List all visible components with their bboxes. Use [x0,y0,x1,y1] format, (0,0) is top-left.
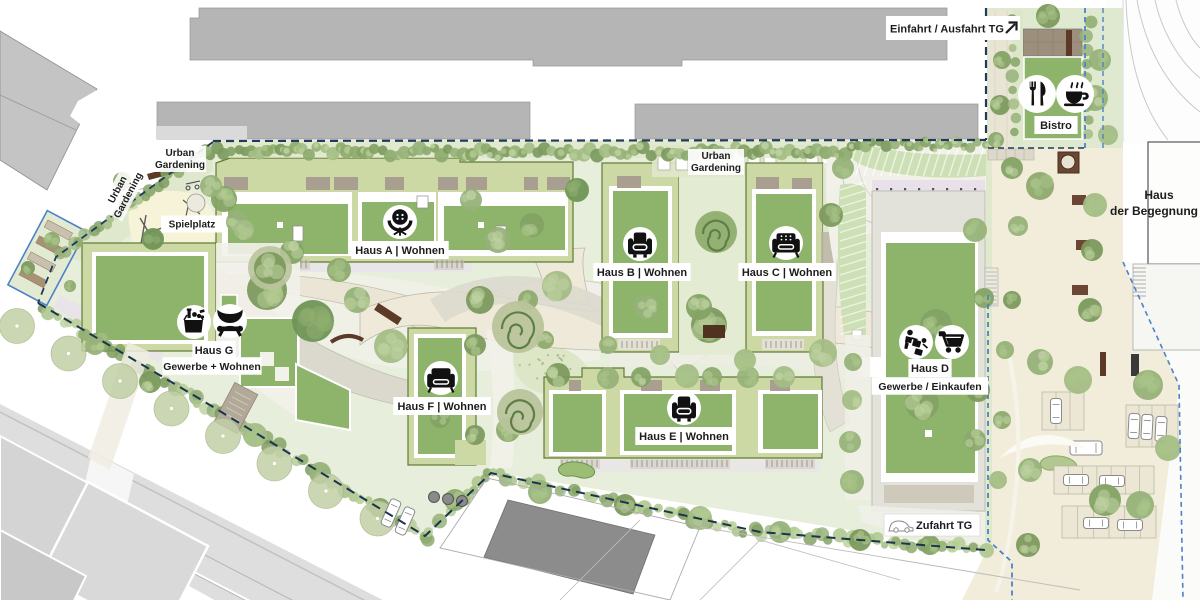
svg-text:Gewerbe / Einkaufen: Gewerbe / Einkaufen [878,381,981,393]
svg-text:der Begegnung: der Begegnung [1110,204,1198,218]
svg-text:Urban: Urban [166,148,195,159]
svg-text:Gardening: Gardening [155,160,205,171]
svg-text:Haus A | Wohnen: Haus A | Wohnen [355,245,445,257]
svg-text:Haus E | Wohnen: Haus E | Wohnen [639,431,729,443]
svg-text:Gewerbe + Wohnen: Gewerbe + Wohnen [163,361,261,373]
svg-text:Spielplatz: Spielplatz [169,220,216,231]
svg-text:Zufahrt TG: Zufahrt TG [916,520,972,532]
svg-text:Haus: Haus [1144,188,1174,202]
svg-text:Einfahrt / Ausfahrt TG: Einfahrt / Ausfahrt TG [890,24,1004,36]
svg-text:Haus C | Wohnen: Haus C | Wohnen [742,267,833,279]
svg-text:Haus B | Wohnen: Haus B | Wohnen [597,267,688,279]
svg-text:Haus D: Haus D [911,363,949,375]
svg-text:Urban: Urban [702,151,731,162]
svg-text:Gardening: Gardening [691,163,741,174]
svg-text:Bistro: Bistro [1040,120,1072,132]
svg-text:Haus F | Wohnen: Haus F | Wohnen [397,401,486,413]
svg-text:Haus G: Haus G [195,345,234,357]
